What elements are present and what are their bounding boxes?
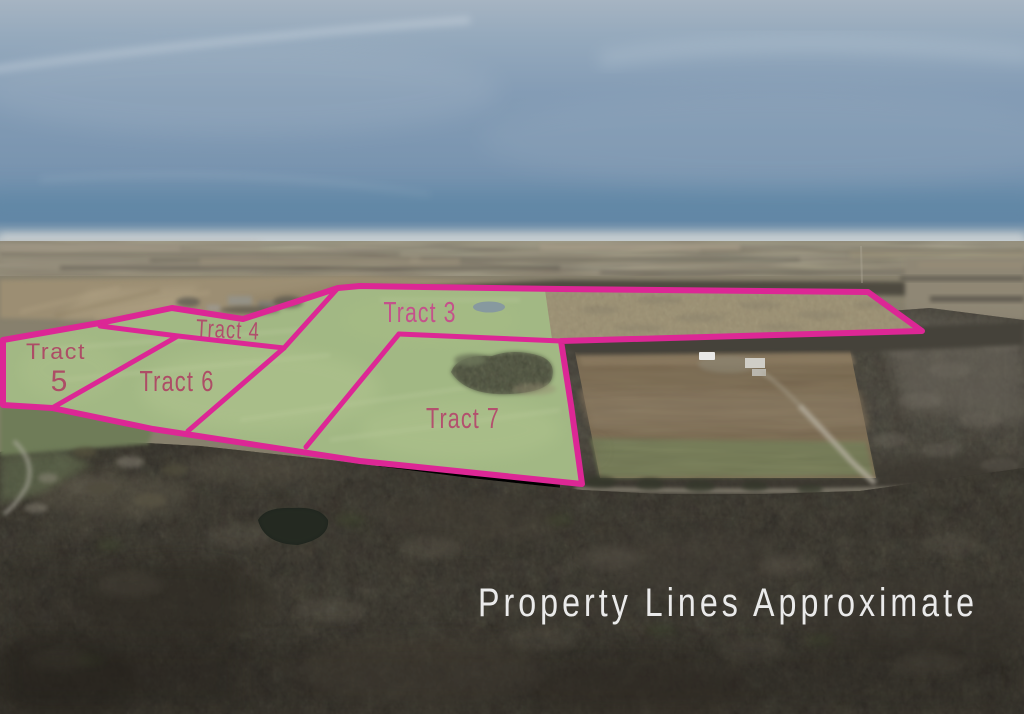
- svg-text:Tract 7: Tract 7: [426, 403, 500, 435]
- svg-text:Tract 6: Tract 6: [140, 366, 215, 398]
- svg-text:Tract: Tract: [26, 339, 86, 364]
- svg-text:Tract 3: Tract 3: [384, 297, 457, 329]
- svg-text:Property Lines Approximate: Property Lines Approximate: [478, 581, 978, 625]
- svg-text:Tract 4: Tract 4: [195, 314, 260, 345]
- svg-text:5: 5: [51, 365, 68, 398]
